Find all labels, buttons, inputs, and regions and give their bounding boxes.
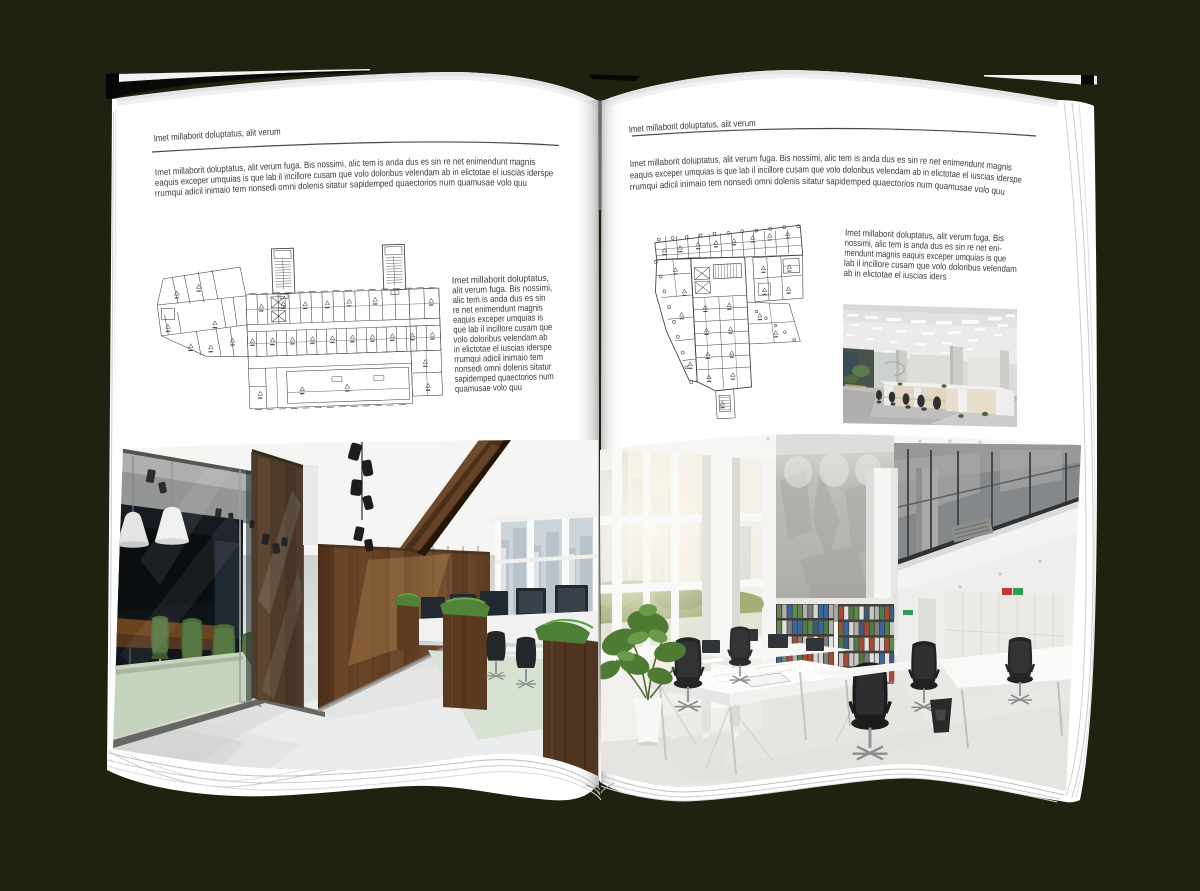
svg-text:quamusae volo quu: quamusae volo quu [455,382,522,394]
